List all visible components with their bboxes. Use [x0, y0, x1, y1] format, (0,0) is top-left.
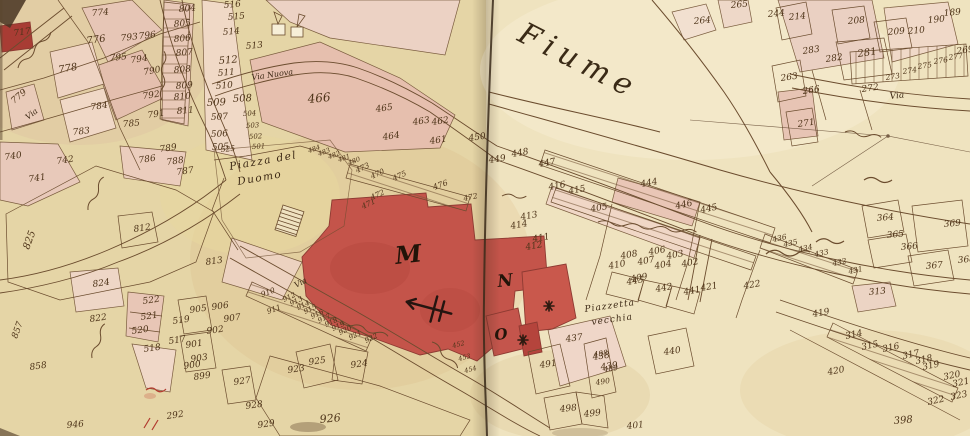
parcel-number: 783	[72, 126, 90, 138]
parcel-number: 499	[582, 408, 601, 420]
parcel-number: 809	[175, 81, 193, 92]
parcel-number: 796	[138, 30, 156, 42]
parcel-number: 368	[957, 255, 970, 266]
parcel-number: 364	[876, 213, 894, 224]
parcel-number: 804	[178, 4, 196, 15]
parcel-number: 189	[943, 8, 961, 19]
parcel-number: 774	[91, 8, 109, 19]
parcel-number: 512	[218, 54, 238, 67]
via-label-right: Via	[889, 91, 905, 102]
parcel-number: 209	[886, 27, 905, 39]
parcel-number: 504	[243, 109, 257, 118]
parcel-number: 805	[173, 19, 191, 30]
parcel-number: 810	[173, 92, 191, 103]
parcel-number: 398	[893, 414, 913, 427]
parcel-number: 503	[246, 121, 260, 130]
duomo-letter-m: M	[393, 238, 425, 270]
parcel-number: 807	[175, 48, 193, 59]
historical-cadastral-map: Fiume Piazza del Duomo Piazzetta vecchia…	[0, 0, 970, 436]
parcel-number: 313	[868, 287, 886, 298]
parcel-number: 806	[173, 34, 191, 45]
parcel-number: 516	[223, 0, 241, 11]
parcel-number: 401	[625, 420, 644, 432]
parcel-number: 244	[766, 9, 785, 21]
parcel-number: 214	[787, 12, 806, 24]
parcel-number: 808	[173, 65, 191, 76]
parcel-number: 498	[558, 403, 577, 415]
parcel-number: 190	[927, 15, 945, 26]
parcel-number: 508	[233, 93, 253, 105]
parcel-number: 513	[245, 41, 263, 52]
parcel-number: 946	[66, 420, 84, 431]
parcel-number: 510	[215, 81, 233, 92]
parcel-number: 507	[211, 112, 229, 123]
parcel-number: 366	[900, 242, 918, 253]
parcel-number: 264	[692, 16, 711, 28]
parcel-number: 369	[943, 219, 961, 230]
parcel-number: 811	[176, 106, 194, 117]
parcel-number: 525	[220, 144, 235, 154]
map-canvas: Fiume Piazza del Duomo Piazzetta vecchia…	[0, 0, 970, 436]
parcel-number: 511	[217, 68, 235, 79]
parcel-number: 793	[120, 32, 138, 44]
parcel-number: 365	[886, 230, 904, 241]
parcel-number: 501	[252, 142, 266, 151]
parcel-number: 785	[122, 119, 140, 130]
parcel-number: 509	[207, 97, 227, 109]
parcel-number: 265	[729, 0, 748, 11]
parcel-number: 506	[211, 129, 229, 140]
parcel-number: 515	[227, 12, 245, 23]
parcel-number: 795	[109, 52, 127, 64]
parcel-number: 367	[925, 261, 943, 272]
parcel-number: 502	[249, 132, 263, 141]
parcel-number: 926	[319, 411, 341, 426]
parcel-number: 210	[906, 26, 925, 38]
parcel-number: 466	[306, 90, 331, 106]
parcel-number: 208	[846, 16, 865, 28]
parcel-number: 514	[222, 27, 240, 38]
